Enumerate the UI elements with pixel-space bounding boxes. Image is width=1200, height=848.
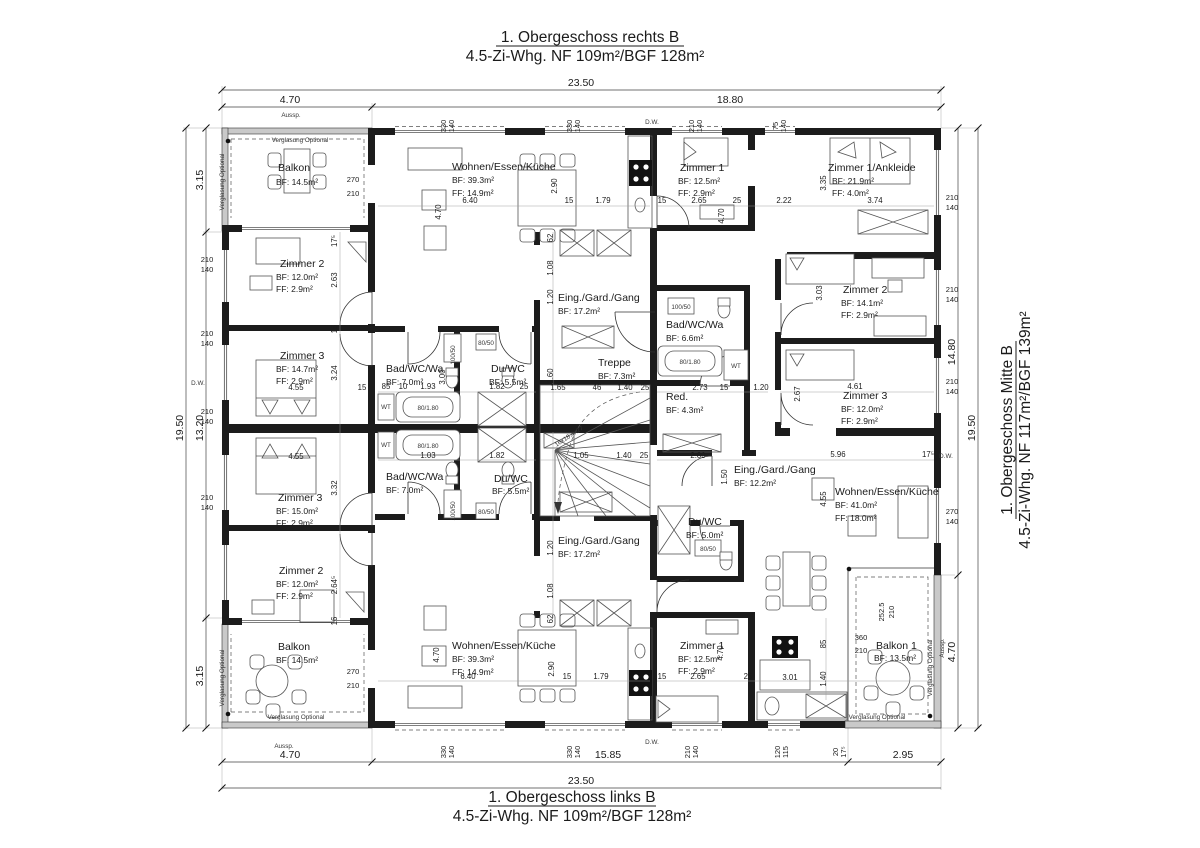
svg-text:140: 140 [201,417,214,426]
svg-text:140: 140 [573,746,582,759]
svg-text:270: 270 [347,175,360,184]
svg-text:15: 15 [658,196,667,205]
shower-label: 80/50 [478,509,494,516]
svg-text:210: 210 [946,193,959,202]
room-label-balkon-tl: Balkon [278,162,310,174]
svg-text:BF: 12.5m²: BF: 12.5m² [678,176,720,186]
dim-bottom-a: 4.70 [280,749,301,761]
room-label-wek-top: Wohnen/Essen/Küche [452,161,556,173]
dim-left-a: 3.15 [194,170,206,191]
floor-plan-page: 1. Obergeschoss rechts B 4.5-Zi-Whg. NF … [0,0,1200,848]
svg-text:FF: 2.9m²: FF: 2.9m² [276,518,313,528]
svg-text:16: 16 [330,617,339,626]
dim-bottom-total: 23.50 [568,775,594,787]
sink [635,644,645,658]
dw-mark: D.W. [645,739,659,746]
svg-text:3.01: 3.01 [782,673,797,682]
dim-top-total: 23.50 [568,77,594,89]
svg-text:BF: 12.2m²: BF: 12.2m² [734,478,776,488]
svg-text:FF: 2.9m²: FF: 2.9m² [841,310,878,320]
double-bed [256,438,316,494]
desk [872,258,924,278]
sink [765,697,779,715]
svg-text:140: 140 [691,746,700,759]
svg-text:BF: 15.0m²: BF: 15.0m² [276,506,318,516]
svg-text:1.82: 1.82 [489,382,504,391]
staircase [540,385,650,516]
svg-text:4.70: 4.70 [717,208,726,224]
wardrobe [562,326,614,348]
aussparung-note: Aussp. [274,743,294,750]
title-bottom-line2: 4.5-Zi-Whg. NF 109m²/BGF 128m² [453,808,692,825]
verglasung-note: Verglasung Optional [849,714,906,721]
svg-text:4.55: 4.55 [819,491,828,507]
svg-text:3.03: 3.03 [815,285,824,300]
desk [706,620,738,634]
svg-text:BF: 6.6m²: BF: 6.6m² [666,333,703,343]
svg-text:210: 210 [201,407,214,416]
svg-text:140: 140 [946,517,959,526]
svg-text:BF: 39.3m²: BF: 39.3m² [452,175,494,185]
svg-text:15: 15 [565,196,574,205]
floor-plan-canvas: 1. Obergeschoss rechts B 4.5-Zi-Whg. NF … [0,0,1200,848]
svg-text:1.20: 1.20 [546,540,555,556]
svg-text:BF: 17.2m²: BF: 17.2m² [558,306,600,316]
svg-text:1.40: 1.40 [819,671,828,687]
bed [656,696,718,722]
svg-text:140: 140 [201,503,214,512]
svg-text:25: 25 [520,382,529,391]
shower-label: 80/50 [478,340,494,347]
svg-text:2.64⁵: 2.64⁵ [330,576,339,594]
svg-text:1.79: 1.79 [595,196,610,205]
svg-text:140: 140 [201,339,214,348]
room-label-zimmer2-r: Zimmer 2 [843,284,887,296]
svg-text:210: 210 [946,377,959,386]
verglasung-note: Verglasung Optional [219,154,226,211]
svg-text:2.63: 2.63 [330,272,339,287]
svg-text:140: 140 [573,120,582,133]
svg-text:FF: 2.9m²: FF: 2.9m² [841,416,878,426]
sink [635,198,645,212]
stove [629,160,652,186]
dw-mark: D.W. [191,380,205,387]
svg-text:15: 15 [720,383,729,392]
bathtub-label: 80/1.80 [417,405,439,412]
svg-text:2.65: 2.65 [690,672,706,681]
room-label-du-top: Du/WC [491,363,525,375]
svg-text:1.20: 1.20 [753,383,769,392]
svg-text:FF: 18.0m²: FF: 18.0m² [835,513,877,523]
svg-text:2.73: 2.73 [692,383,707,392]
svg-text:4.70: 4.70 [716,645,725,661]
dim-left-c: 3.15 [194,666,206,687]
svg-text:2.80: 2.80 [690,451,706,460]
svg-text:2.90: 2.90 [547,661,556,677]
svg-text:210: 210 [201,329,214,338]
aussparung-note: Aussp. [939,638,946,658]
room-label-zimmer1-top: Zimmer 1 [680,162,724,174]
svg-text:1.50: 1.50 [720,469,729,485]
room-label-zimmer3-l1: Zimmer 3 [280,350,324,362]
svg-text:210: 210 [201,493,214,502]
verglasung-note: Verglasung Optional [268,714,325,721]
svg-text:1.03: 1.03 [420,451,435,460]
svg-text:BF: 12.5m²: BF: 12.5m² [678,654,720,664]
desk [252,600,274,614]
svg-text:1.79: 1.79 [593,672,608,681]
washer-label: 100/50 [450,345,457,365]
svg-text:FF: 2.9m²: FF: 2.9m² [276,284,313,294]
svg-text:270: 270 [946,507,959,516]
svg-text:1.60: 1.60 [546,368,555,384]
svg-text:BF: 39.3m²: BF: 39.3m² [452,654,494,664]
svg-text:25: 25 [640,451,649,460]
svg-text:3.32: 3.32 [330,480,339,495]
room-label-bad-top: Bad/WC/Wa [386,363,444,375]
svg-text:210: 210 [887,606,896,619]
dim-top-a: 4.70 [280,94,301,106]
shower [478,392,526,426]
svg-text:4.55: 4.55 [288,452,304,461]
verglasung-note: Verglasung Optional [927,640,934,697]
room-label-zimmer3-r: Zimmer 3 [843,390,887,402]
svg-text:210: 210 [347,189,360,198]
bathtub-label: 80/1.80 [679,359,701,366]
washer-label: 100/50 [671,304,691,311]
svg-text:2.65: 2.65 [691,196,707,205]
svg-text:360: 360 [855,633,868,642]
svg-text:5.96: 5.96 [830,450,845,459]
room-label-bad-mitte: Bad/WC/Wa [666,319,724,331]
svg-text:1.82: 1.82 [489,451,504,460]
svg-text:140: 140 [946,203,959,212]
room-label-zimmer3-l2: Zimmer 3 [278,492,322,504]
svg-text:210: 210 [201,255,214,264]
svg-text:1.40: 1.40 [616,451,632,460]
svg-text:BF: 5.5m²: BF: 5.5m² [492,486,529,496]
dim-bottom-c: 2.95 [893,749,914,761]
dining-table [783,552,810,606]
verglasung-note: Verglasung Optional [272,137,329,144]
svg-text:85: 85 [382,382,391,391]
svg-text:252.5: 252.5 [877,603,886,622]
svg-text:140: 140 [946,295,959,304]
svg-text:46: 46 [593,383,602,392]
svg-text:3.35: 3.35 [819,175,828,191]
room-label-bad-bottom: Bad/WC/Wa [386,471,444,483]
dim-top-b: 18.80 [717,94,743,106]
svg-text:BF: 5.0m²: BF: 5.0m² [686,530,723,540]
room-label-zimmer2-tl: Zimmer 2 [280,258,324,270]
room-label-eing-mitte: Eing./Gard./Gang [734,464,816,476]
svg-text:6.40: 6.40 [462,196,478,205]
svg-text:140: 140 [447,746,456,759]
title-right-line2: 4.5-Zi-Whg. NF 117m²/BGF 139m² [1017,311,1034,548]
wardrobe [663,434,721,452]
bathtub-label: 80/1.80 [417,443,439,450]
svg-text:62: 62 [546,615,555,624]
svg-text:15: 15 [658,672,667,681]
room-label-red: Red. [666,391,688,403]
svg-text:2.22: 2.22 [776,196,791,205]
svg-text:1.40: 1.40 [617,383,633,392]
svg-text:15: 15 [330,324,339,333]
svg-text:3.00: 3.00 [438,369,447,385]
room-label-wek-bottom: Wohnen/Essen/Küche [452,640,556,652]
svg-text:BF: 12.0m²: BF: 12.0m² [841,404,883,414]
svg-text:BF: 17.2m²: BF: 17.2m² [558,549,600,559]
room-label-balkon-bl: Balkon [278,641,310,653]
svg-text:4.70: 4.70 [434,204,443,220]
svg-text:115: 115 [781,746,790,758]
svg-text:BF: 13.5m²: BF: 13.5m² [874,653,916,663]
svg-text:140: 140 [447,120,456,133]
svg-text:2.90: 2.90 [550,178,559,194]
svg-text:140: 140 [201,265,214,274]
aussparung-note: Aussp. [281,112,301,119]
room-label-eing-bottom: Eing./Gard./Gang [558,535,640,547]
room-label-balkon1: Balkon 1 [876,640,917,652]
svg-text:25: 25 [733,196,742,205]
verglasung-note: Verglasung Optional [219,650,226,707]
wardrobe [560,492,612,512]
desk [250,276,272,290]
dresser [858,210,928,234]
svg-text:4.55: 4.55 [288,383,304,392]
svg-text:2.67: 2.67 [793,386,802,401]
dw-mark: D.W. [645,119,659,126]
svg-text:1.08: 1.08 [546,583,555,598]
svg-text:140: 140 [695,120,704,133]
washbasin-label: WT [381,404,391,411]
room-label-du-bottom: Du/WC [494,473,528,485]
svg-text:210: 210 [946,285,959,294]
svg-text:BF: 7.0m²: BF: 7.0m² [386,485,423,495]
svg-text:25: 25 [641,383,650,392]
desk [874,316,926,336]
dim-bottom-b: 15.85 [595,749,621,761]
svg-text:270: 270 [347,667,360,676]
svg-text:15: 15 [563,672,572,681]
svg-text:BF: 21.9m²: BF: 21.9m² [832,176,874,186]
dim-right-b: 4.70 [946,642,958,663]
svg-text:FF: 4.0m²: FF: 4.0m² [832,188,869,198]
room-label-wek-r: Wohnen/Essen/Küche [835,486,939,498]
dim-left-total: 19.50 [174,415,186,441]
dim-right-total: 19.50 [966,415,978,441]
sofa [408,686,462,708]
svg-text:BF: 7.3m²: BF: 7.3m² [598,371,635,381]
svg-text:62: 62 [546,234,555,243]
svg-text:10: 10 [399,382,408,391]
svg-text:4.70: 4.70 [432,647,441,663]
svg-text:BF: 41.0m²: BF: 41.0m² [835,500,877,510]
stove [772,636,798,658]
svg-text:1.93: 1.93 [420,382,435,391]
svg-text:3.24: 3.24 [330,365,339,381]
room-label-ankleide: Zimmer 1/Ankleide [828,162,916,174]
svg-text:3.74: 3.74 [867,196,883,205]
svg-text:15: 15 [358,383,367,392]
room-label-zimmer2-bl: Zimmer 2 [279,565,323,577]
washer-label: 100/50 [450,501,457,521]
room-label-du-mitte: Du/WC [688,516,722,528]
svg-text:BF: 12.0m²: BF: 12.0m² [276,579,318,589]
svg-text:210: 210 [347,681,360,690]
svg-text:140: 140 [946,387,959,396]
svg-text:FF: 2.9m²: FF: 2.9m² [276,591,313,601]
title-top-line2: 4.5-Zi-Whg. NF 109m²/BGF 128m² [466,48,705,65]
round-table [876,661,910,695]
kitchen-counter [757,692,847,720]
shower-label: 80/50 [700,546,716,553]
svg-text:4.61: 4.61 [847,382,862,391]
svg-text:210: 210 [855,646,868,655]
room-label-eing-top: Eing./Gard./Gang [558,292,640,304]
stove [629,670,652,696]
svg-text:BF: 14.5m²: BF: 14.5m² [276,177,318,187]
svg-text:BF: 12.0m²: BF: 12.0m² [276,272,318,282]
svg-text:17⁵: 17⁵ [330,235,339,247]
svg-text:1.05: 1.05 [573,451,589,460]
title-top-line1: 1. Obergeschoss rechts B [501,29,679,46]
svg-text:BF: 14.1m²: BF: 14.1m² [841,298,883,308]
svg-text:1.20: 1.20 [546,289,555,305]
washbasin-label: WT [731,363,741,370]
dim-right-a: 14.80 [946,339,958,365]
svg-text:BF: 4.3m²: BF: 4.3m² [666,405,703,415]
title-bottom-line1: 1. Obergeschoss links B [488,789,655,806]
room-label-treppe: Treppe [598,357,631,369]
round-table [256,665,288,697]
svg-text:140: 140 [779,120,788,133]
dw-mark: D.W. [939,453,953,460]
svg-text:17⁵: 17⁵ [922,450,934,459]
svg-text:17⁵: 17⁵ [839,746,848,757]
svg-text:6.40: 6.40 [460,672,476,681]
svg-text:BF: 14.7m²: BF: 14.7m² [276,364,318,374]
svg-text:1.08: 1.08 [546,260,555,275]
title-right-line1: 1. Obergeschoss Mitte B [999,345,1016,515]
svg-text:BF: 14.5m²: BF: 14.5m² [276,655,318,665]
svg-text:25: 25 [744,672,753,681]
svg-text:85: 85 [819,639,828,648]
washbasin-label: WT [381,442,391,449]
